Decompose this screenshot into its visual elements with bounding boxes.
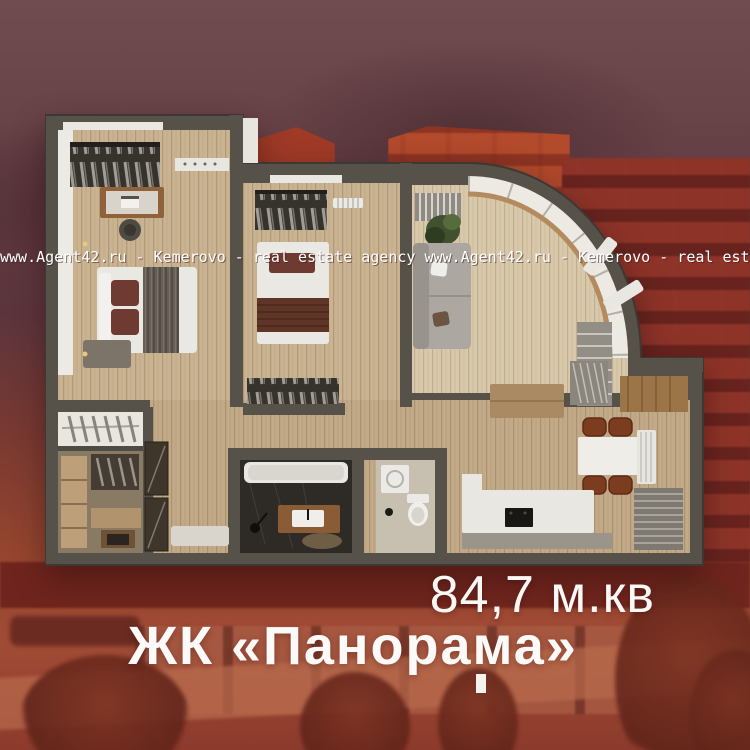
counter [91, 508, 141, 528]
street-lamp-highlight [476, 674, 486, 693]
bath-rug [302, 533, 342, 549]
dining-table [578, 437, 638, 475]
walk-in-closet [58, 412, 143, 553]
kitchen-mat [462, 533, 612, 549]
shelf [175, 158, 229, 171]
window-bedroom1 [63, 122, 163, 130]
area-label: 84,7 м.кв [0, 569, 655, 621]
bathroom [240, 460, 352, 553]
window-bedroom2 [270, 175, 342, 183]
pillow [111, 309, 139, 335]
toilet-tank [407, 494, 429, 503]
cooktop [505, 508, 533, 527]
pillow [111, 280, 139, 306]
shelf-unit [61, 456, 87, 548]
wall-column [243, 118, 258, 163]
hanger-rack [247, 378, 339, 404]
wardrobe [70, 142, 160, 187]
real-estate-ad: www.Agent42.ru - Kemerovo - real estate … [0, 0, 750, 750]
washing-machine [381, 465, 409, 493]
watermark: www.Agent42.ru - Kemerovo - real estate … [0, 246, 750, 268]
bench [83, 340, 131, 368]
wood-cabinet [620, 376, 688, 412]
wc [376, 460, 435, 553]
blinds [634, 488, 683, 550]
floorplan-render [45, 112, 705, 567]
project-title: ЖК «Панорама» [0, 619, 706, 673]
clothes-rack [255, 190, 327, 230]
floor-mat [171, 526, 229, 546]
